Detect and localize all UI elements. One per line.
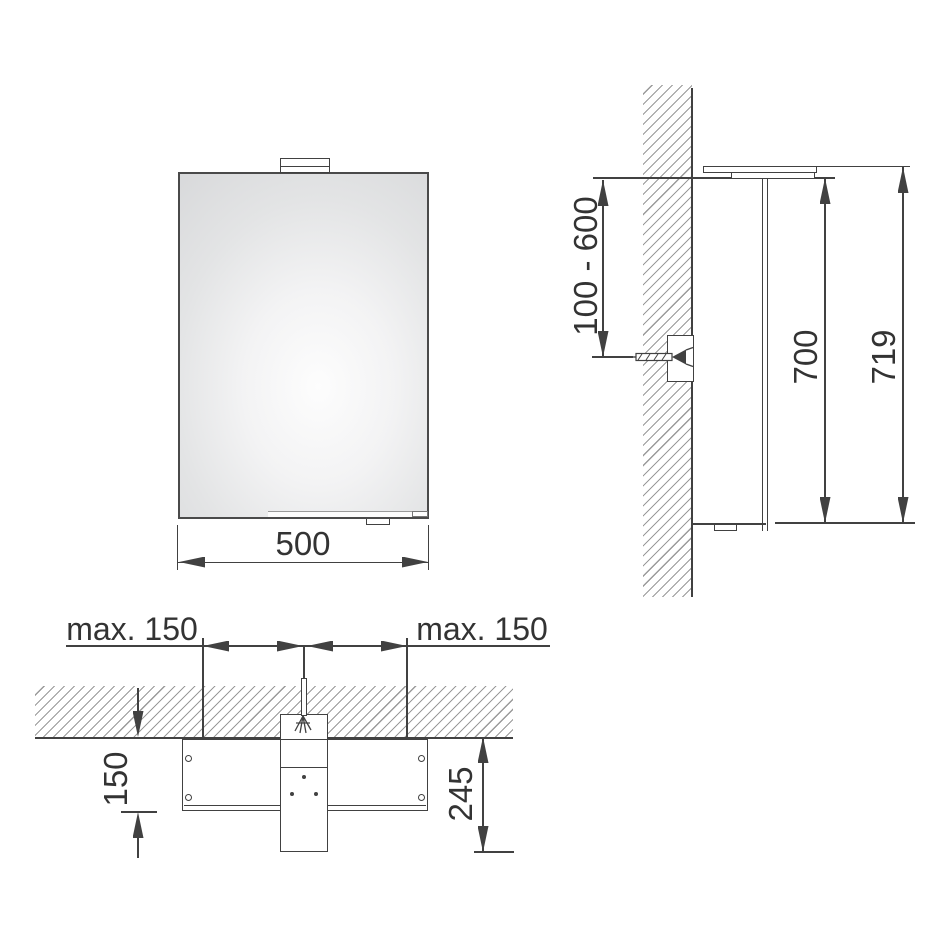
latch-side xyxy=(714,525,737,531)
screw-hole xyxy=(314,792,318,796)
dim-max150-ext-right xyxy=(406,638,407,737)
technical-drawing-mirror-cabinet: 500 100 - 600 xyxy=(0,0,950,950)
arrow-left-icon xyxy=(179,557,205,568)
arrow-up-icon xyxy=(133,812,144,838)
dim-150-line-upper xyxy=(137,688,138,714)
cable-centerline xyxy=(303,646,304,680)
wall-hatch-plan xyxy=(35,686,513,739)
latch-front xyxy=(366,519,390,525)
arrow-up-icon xyxy=(478,737,489,763)
hinge-hole xyxy=(418,794,425,801)
ref-line-bottom xyxy=(775,522,915,523)
dim-100-600-label: 100 - 600 xyxy=(569,181,603,351)
cabinet-front-line xyxy=(762,178,768,531)
dim-100-600-tick xyxy=(592,356,633,357)
dim-700-line xyxy=(824,178,825,523)
dim-719-label: 719 xyxy=(867,322,901,392)
light-module-front-line xyxy=(281,166,329,167)
arrow-right-icon xyxy=(381,641,407,652)
dim-500-ext-right xyxy=(428,525,429,570)
arrow-left-icon xyxy=(307,641,333,652)
arrow-up-icon xyxy=(898,167,909,193)
center-unit-divider xyxy=(281,767,327,768)
corner-notch xyxy=(412,511,428,517)
dim-max150-left-label: max. 150 xyxy=(62,612,202,646)
arrow-right-icon xyxy=(277,641,303,652)
dim-150-line-lower xyxy=(137,836,138,858)
ref-line-719-top xyxy=(817,166,910,167)
dim-700-label: 700 xyxy=(789,322,823,392)
screw-hole xyxy=(302,775,306,779)
wall-anchor-icon xyxy=(626,346,694,368)
arrow-down-icon xyxy=(898,497,909,523)
arrow-up-icon xyxy=(820,178,831,204)
dim-max150-ext-left xyxy=(202,638,203,737)
arrow-down-icon xyxy=(820,497,831,523)
dim-719-line xyxy=(902,167,903,523)
center-unit-plan xyxy=(280,739,328,852)
hinge-hole xyxy=(185,755,192,762)
arrow-left-icon xyxy=(203,641,229,652)
arrow-right-icon xyxy=(402,557,428,568)
hinge-hole xyxy=(418,755,425,762)
wire-ends-icon xyxy=(291,714,315,736)
bottom-trim xyxy=(268,511,418,517)
dim-245-tick xyxy=(474,851,514,852)
power-cable-icon xyxy=(301,678,307,716)
screw-hole xyxy=(290,792,294,796)
mirror-front xyxy=(178,172,429,519)
dim-245-label: 245 xyxy=(444,759,478,829)
arrow-down-icon xyxy=(478,826,489,852)
dim-max150-right-label: max. 150 xyxy=(412,612,552,646)
dim-500-ext-left xyxy=(177,525,178,570)
dim-150-label: 150 xyxy=(99,744,133,814)
dim-500-label: 500 xyxy=(263,527,343,561)
hinge-hole xyxy=(185,794,192,801)
light-module-side-body xyxy=(731,172,815,179)
